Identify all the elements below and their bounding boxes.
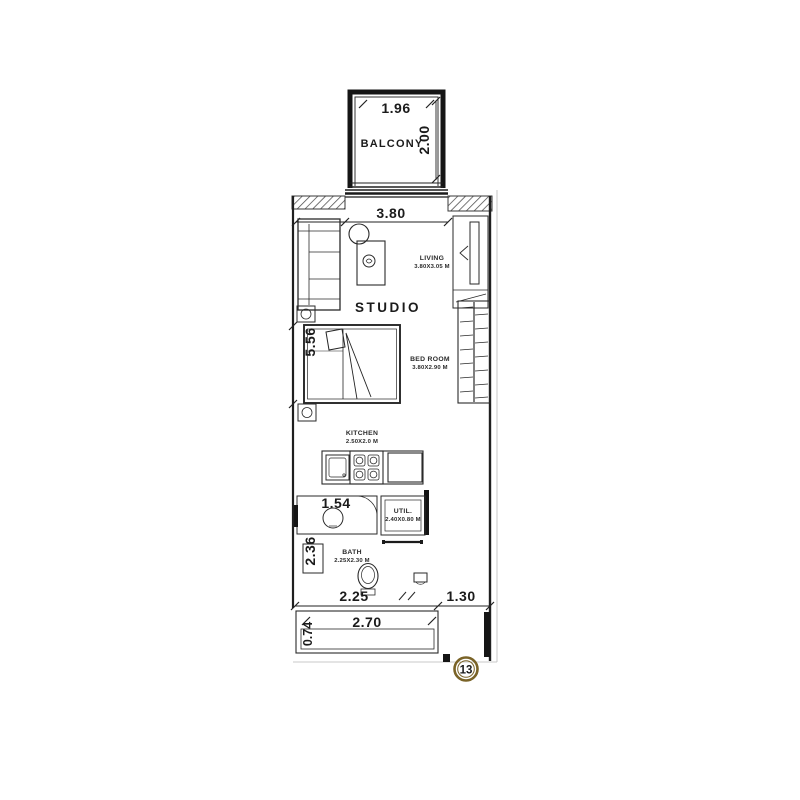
unit-number: 13 [460,665,473,677]
bottom-dim-right: 1.30 [446,588,475,604]
wash-basin [323,508,343,528]
stove [350,451,383,484]
bath-label: BATH [342,549,362,556]
top-wall-left-hatched [292,196,345,209]
kitchen-label: KITCHEN [346,430,378,437]
bottom-area: 2.25 1.30 2.70 0.74 [291,588,494,662]
shower-door-swing [357,496,377,516]
pillow [326,329,345,350]
studio-title: STUDIO [355,300,421,315]
bedroom-size: 3.80X2.90 M [412,365,448,371]
terrace-depth-dim: 0.74 [301,622,315,646]
kitchen-size: 2.50X2.0 M [346,439,378,445]
living-width-dim: 3.80 [376,205,405,221]
bed [304,325,400,403]
utility-size: 2.40X0.80 M [385,517,421,523]
utility-room [381,496,425,535]
sofa [298,219,340,310]
floor-plan-page: 1.96 BALCONY 2.00 3.80 [0,0,800,800]
wall-block [443,654,450,662]
bottom-dim-left: 2.25 [339,588,368,604]
balcony-label: BALCONY [361,138,424,150]
towel-rail [382,540,423,544]
bedroom-area: 5.56 BED ROOM 3.80X2.90 M [289,301,490,421]
small-basin [414,573,427,584]
terrace-width-dim: 2.70 [352,614,381,630]
blanket-fold [346,333,371,399]
unit-number-badge: 13 [455,658,478,681]
kitchen-counter [322,451,423,484]
floor-plan-drawing: 1.96 BALCONY 2.00 3.80 [0,0,800,800]
wall-segment [294,505,298,527]
balcony: 1.96 BALCONY 2.00 [350,92,443,188]
coffee-table [357,241,385,285]
bedroom-label: BED ROOM [410,356,450,363]
dim-tick [399,592,406,600]
dim-tick [359,100,367,108]
balcony-width-dim: 1.96 [381,100,410,116]
dim-tick [428,617,436,625]
balcony-depth-dim: 2.00 [416,125,432,154]
living-label: LIVING [420,255,444,262]
utility-label: UTIL. [394,508,413,515]
top-wall-right-hatched [448,196,492,211]
wardrobe-closet [458,301,490,403]
living-area: 3.80 LIVING 3.80X3.05 M [292,205,488,310]
bath-height-dim: 2.36 [302,536,318,565]
bath-size: 2.25X2.30 M [334,558,370,564]
living-size: 3.80X3.05 M [414,264,450,270]
bath-utility-area: 1.54 UTIL. 2.40X0.80 M 2.36 BATH 2.25X2.… [294,490,429,600]
column [484,612,490,657]
entry-door [453,216,488,308]
dim-tick [408,592,415,600]
fridge-counter [388,453,422,482]
kitchen-area: KITCHEN 2.50X2.0 M [322,430,423,484]
nightstand-top [297,306,315,322]
nightstand-bottom [298,404,316,421]
kitchen-sink [326,455,349,480]
